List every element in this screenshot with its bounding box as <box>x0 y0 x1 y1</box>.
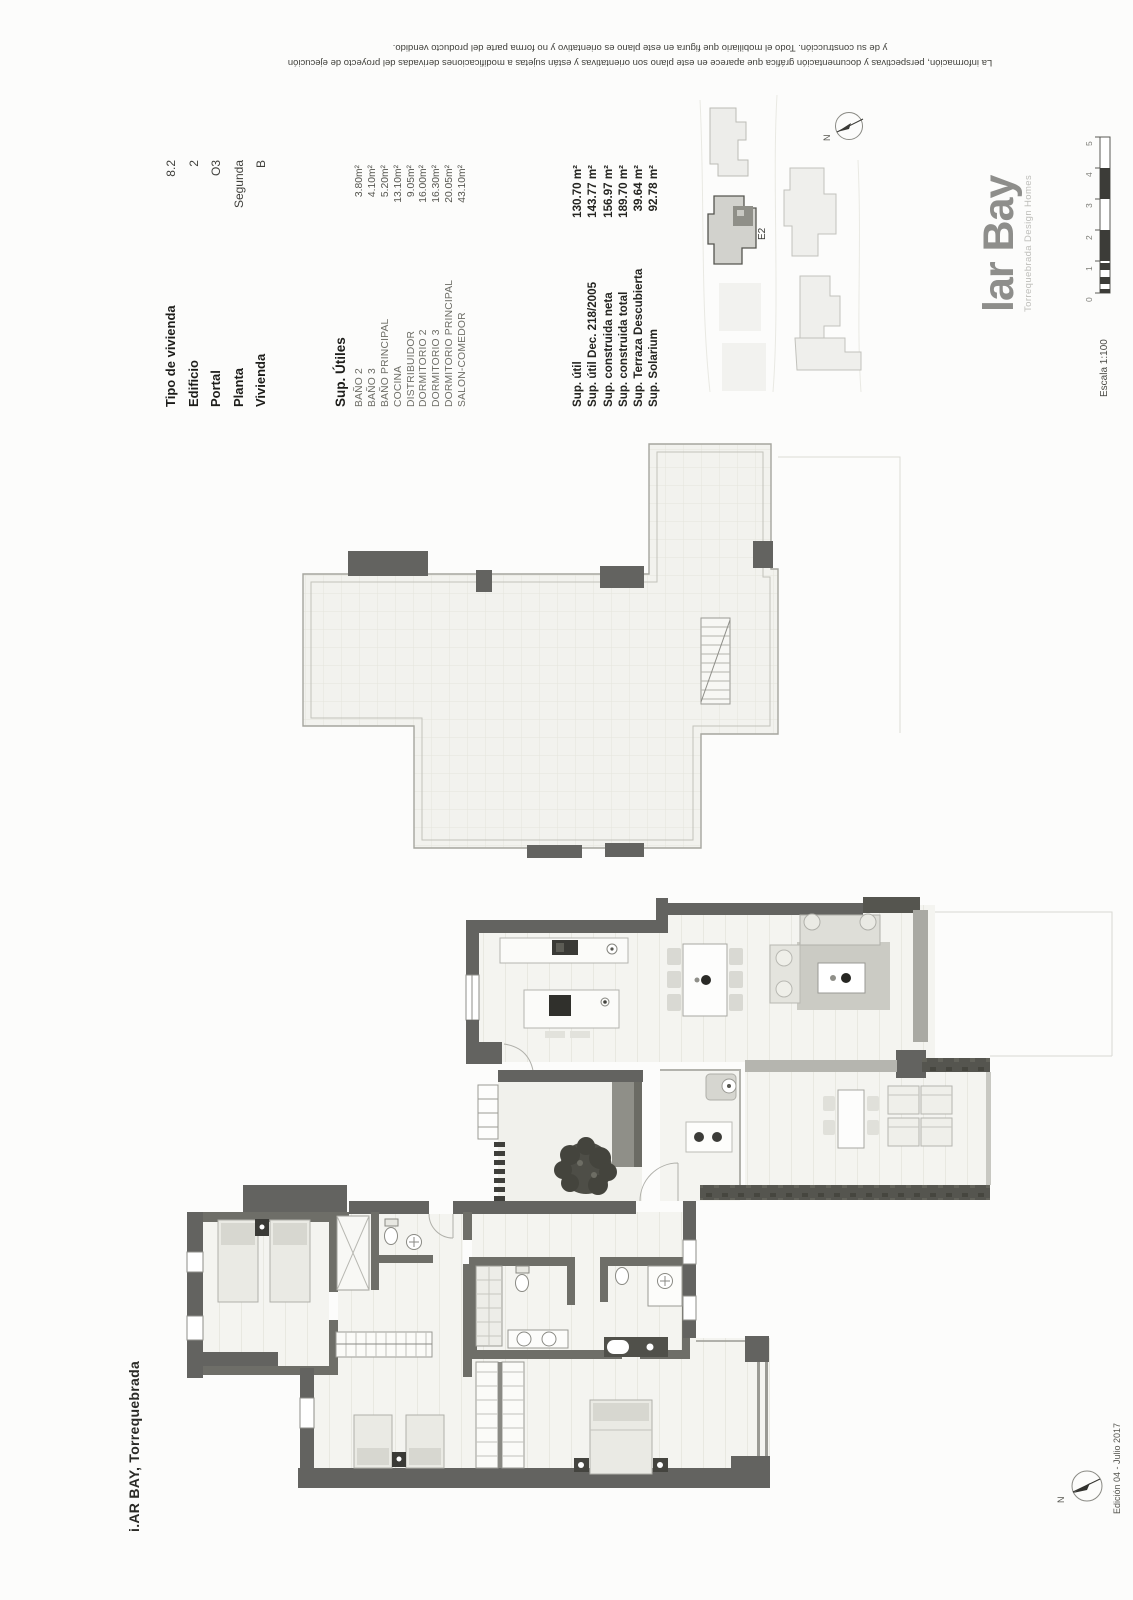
site-building-3 <box>800 276 840 340</box>
dining-area <box>667 944 743 1016</box>
cooktop <box>549 995 571 1016</box>
unit-info-value: Segunda <box>232 160 246 208</box>
logo-tagline: Torrequebrada Design Homes <box>1023 100 1034 312</box>
room-label: DORMITORIO 3 <box>431 329 442 407</box>
scanned-floorplan-page: La información, perspectivas y documenta… <box>0 0 1133 1600</box>
brand-logo: lar Bay Torrequebrada Design Homes <box>978 100 1046 312</box>
summary-value: 156.97 m² <box>602 165 615 218</box>
site-building-1 <box>710 108 748 176</box>
sup-utiles-row: COCINA13.10m² <box>393 165 406 407</box>
room-label: DISTRIBUIDOR <box>406 331 417 407</box>
summary-value: 92.78 m² <box>647 165 660 211</box>
summary-label: Sup. útil <box>571 361 584 407</box>
unit-info-label: Tipo de vivienda <box>163 305 178 407</box>
sup-utiles-list: Sup. Útiles BAÑO 23.80m² BAÑO 34.10m² BA… <box>333 165 473 407</box>
site-garden-block <box>719 283 761 331</box>
summary-label: Sup. útil Dec. 218/2005 <box>586 282 599 407</box>
toilet <box>516 1275 529 1292</box>
disclaimer-line-1: La información, perspectivas y documenta… <box>160 55 1120 70</box>
site-building-2 <box>784 168 836 256</box>
sup-utiles-row: DORMITORIO 216.00m² <box>418 165 431 407</box>
scale-tick-4: 4 <box>1084 163 1094 177</box>
room-label: BAÑO 2 <box>354 368 365 407</box>
surface-summary: Sup. útil130.70 m² Sup. útil Dec. 218/20… <box>571 165 663 407</box>
bathtub <box>607 1340 629 1354</box>
summary-row: Sup. útil Dec. 218/2005143.77 m² <box>586 165 601 407</box>
unit-info-table: Tipo de vivienda8.2 Edificio2 PortalO3 P… <box>163 160 275 407</box>
toilet <box>385 1228 398 1245</box>
edition-note: Edición 04 - Julio 2017 <box>1112 1390 1124 1514</box>
unit-info-row: ViviendaB <box>253 160 275 407</box>
kitchen-island <box>524 990 619 1028</box>
sup-utiles-row: DISTRIBUIDOR9.05m² <box>406 165 419 407</box>
sup-utiles-row: BAÑO PRINCIPAL5.20m² <box>380 165 393 407</box>
unit-info-label: Vivienda <box>253 354 268 407</box>
room-label: DORMITORIO 2 <box>418 329 429 407</box>
washbasin <box>517 1332 531 1346</box>
room-area: 16.00m² <box>418 165 429 203</box>
project-title: i.AR BAY, Torrequebrada <box>126 1250 152 1532</box>
room-area: 13.10m² <box>393 165 404 203</box>
toilet <box>616 1268 629 1285</box>
unit-info-row: Edificio2 <box>186 160 208 407</box>
room-area: 3.80m² <box>354 165 365 197</box>
site-plan <box>700 95 863 392</box>
wardrobe-room <box>337 1216 369 1290</box>
unit-info-value: 8.2 <box>164 160 178 177</box>
summary-label: Sup. construida total <box>617 292 630 407</box>
unit-info-row: Tipo de vivienda8.2 <box>163 160 185 407</box>
unit-info-label: Planta <box>231 368 246 407</box>
site-north-label: N <box>822 127 832 141</box>
logo-wordmark: lar Bay <box>978 100 1021 312</box>
sup-utiles-row: DORMITORIO PRINCIPAL20.05m² <box>444 165 457 407</box>
summary-row: Sup. construida neta156.97 m² <box>602 165 617 407</box>
scale-tick-2: 2 <box>1084 226 1094 240</box>
scale-tick-3: 3 <box>1084 194 1094 208</box>
sup-utiles-row: DORMITORIO 316.30m² <box>431 165 444 407</box>
summary-label: Sup. Solarium <box>647 329 660 407</box>
unit-info-row: PortalO3 <box>208 160 230 407</box>
summary-label: Sup. Terraza Descubierta <box>632 269 645 407</box>
room-area: 20.05m² <box>444 165 455 203</box>
main-floor-plan <box>187 897 1112 1488</box>
sup-utiles-row: BAÑO 23.80m² <box>354 165 367 407</box>
room-area: 43.10m² <box>457 165 468 203</box>
unit-info-row: PlantaSegunda <box>231 160 253 407</box>
scale-tick-1: 1 <box>1084 257 1094 271</box>
disclaimer-line-2: y de su construcción. Todo el mobiliario… <box>160 40 1120 55</box>
scale-tick-0: 0 <box>1084 288 1094 302</box>
washbasin <box>542 1332 556 1346</box>
room-label: BAÑO 3 <box>367 368 378 407</box>
disclaimer-text: La información, perspectivas y documenta… <box>160 40 1120 70</box>
summary-value: 189.70 m² <box>617 165 630 218</box>
unit-info-label: Edificio <box>186 360 201 407</box>
room-label: COCINA <box>393 366 404 407</box>
unit-info-label: Portal <box>208 370 223 407</box>
scale-tick-5: 5 <box>1084 132 1094 146</box>
site-garden-block <box>722 343 766 391</box>
sup-utiles-row: SALON-COMEDOR43.10m² <box>457 165 470 407</box>
summary-value: 143.77 m² <box>586 165 599 218</box>
summary-value: 39.64 m² <box>632 165 645 211</box>
room-label: DORMITORIO PRINCIPAL <box>444 280 455 407</box>
terrace-edge <box>700 1185 990 1200</box>
scale-bar <box>1095 137 1110 293</box>
kitchen-range <box>552 940 578 955</box>
solarium-stair <box>701 618 730 704</box>
north-arrow-icon <box>1072 1471 1102 1501</box>
room-area: 9.05m² <box>406 165 417 197</box>
sup-utiles-title: Sup. Útiles <box>333 165 348 407</box>
unit-info-value: B <box>254 160 268 168</box>
site-north-arrow-icon <box>836 113 864 140</box>
solarium-plan <box>303 444 900 858</box>
summary-row: Sup. construida total189.70 m² <box>617 165 632 407</box>
room-label: SALON-COMEDOR <box>457 312 468 407</box>
room-area: 4.10m² <box>367 165 378 197</box>
scale-label: Escala 1:100 <box>1099 329 1113 397</box>
unit-info-value: 2 <box>187 160 201 167</box>
sup-utiles-row: BAÑO 34.10m² <box>367 165 380 407</box>
site-unit-label: E2 <box>757 218 769 240</box>
outdoor-table <box>838 1090 864 1148</box>
summary-row: Sup. útil130.70 m² <box>571 165 586 407</box>
unit-info-value: O3 <box>209 160 223 176</box>
site-building-4 <box>795 338 861 370</box>
room-label: BAÑO PRINCIPAL <box>380 319 391 407</box>
room-area: 16.30m² <box>431 165 442 203</box>
summary-label: Sup. construida neta <box>602 292 615 407</box>
room-area: 5.20m² <box>380 165 391 197</box>
summary-value: 130.70 m² <box>571 165 584 218</box>
summary-row: Sup. Terraza Descubierta39.64 m² <box>632 165 647 407</box>
compass-north-label: N <box>1056 1489 1066 1503</box>
summary-row: Sup. Solarium92.78 m² <box>647 165 662 407</box>
